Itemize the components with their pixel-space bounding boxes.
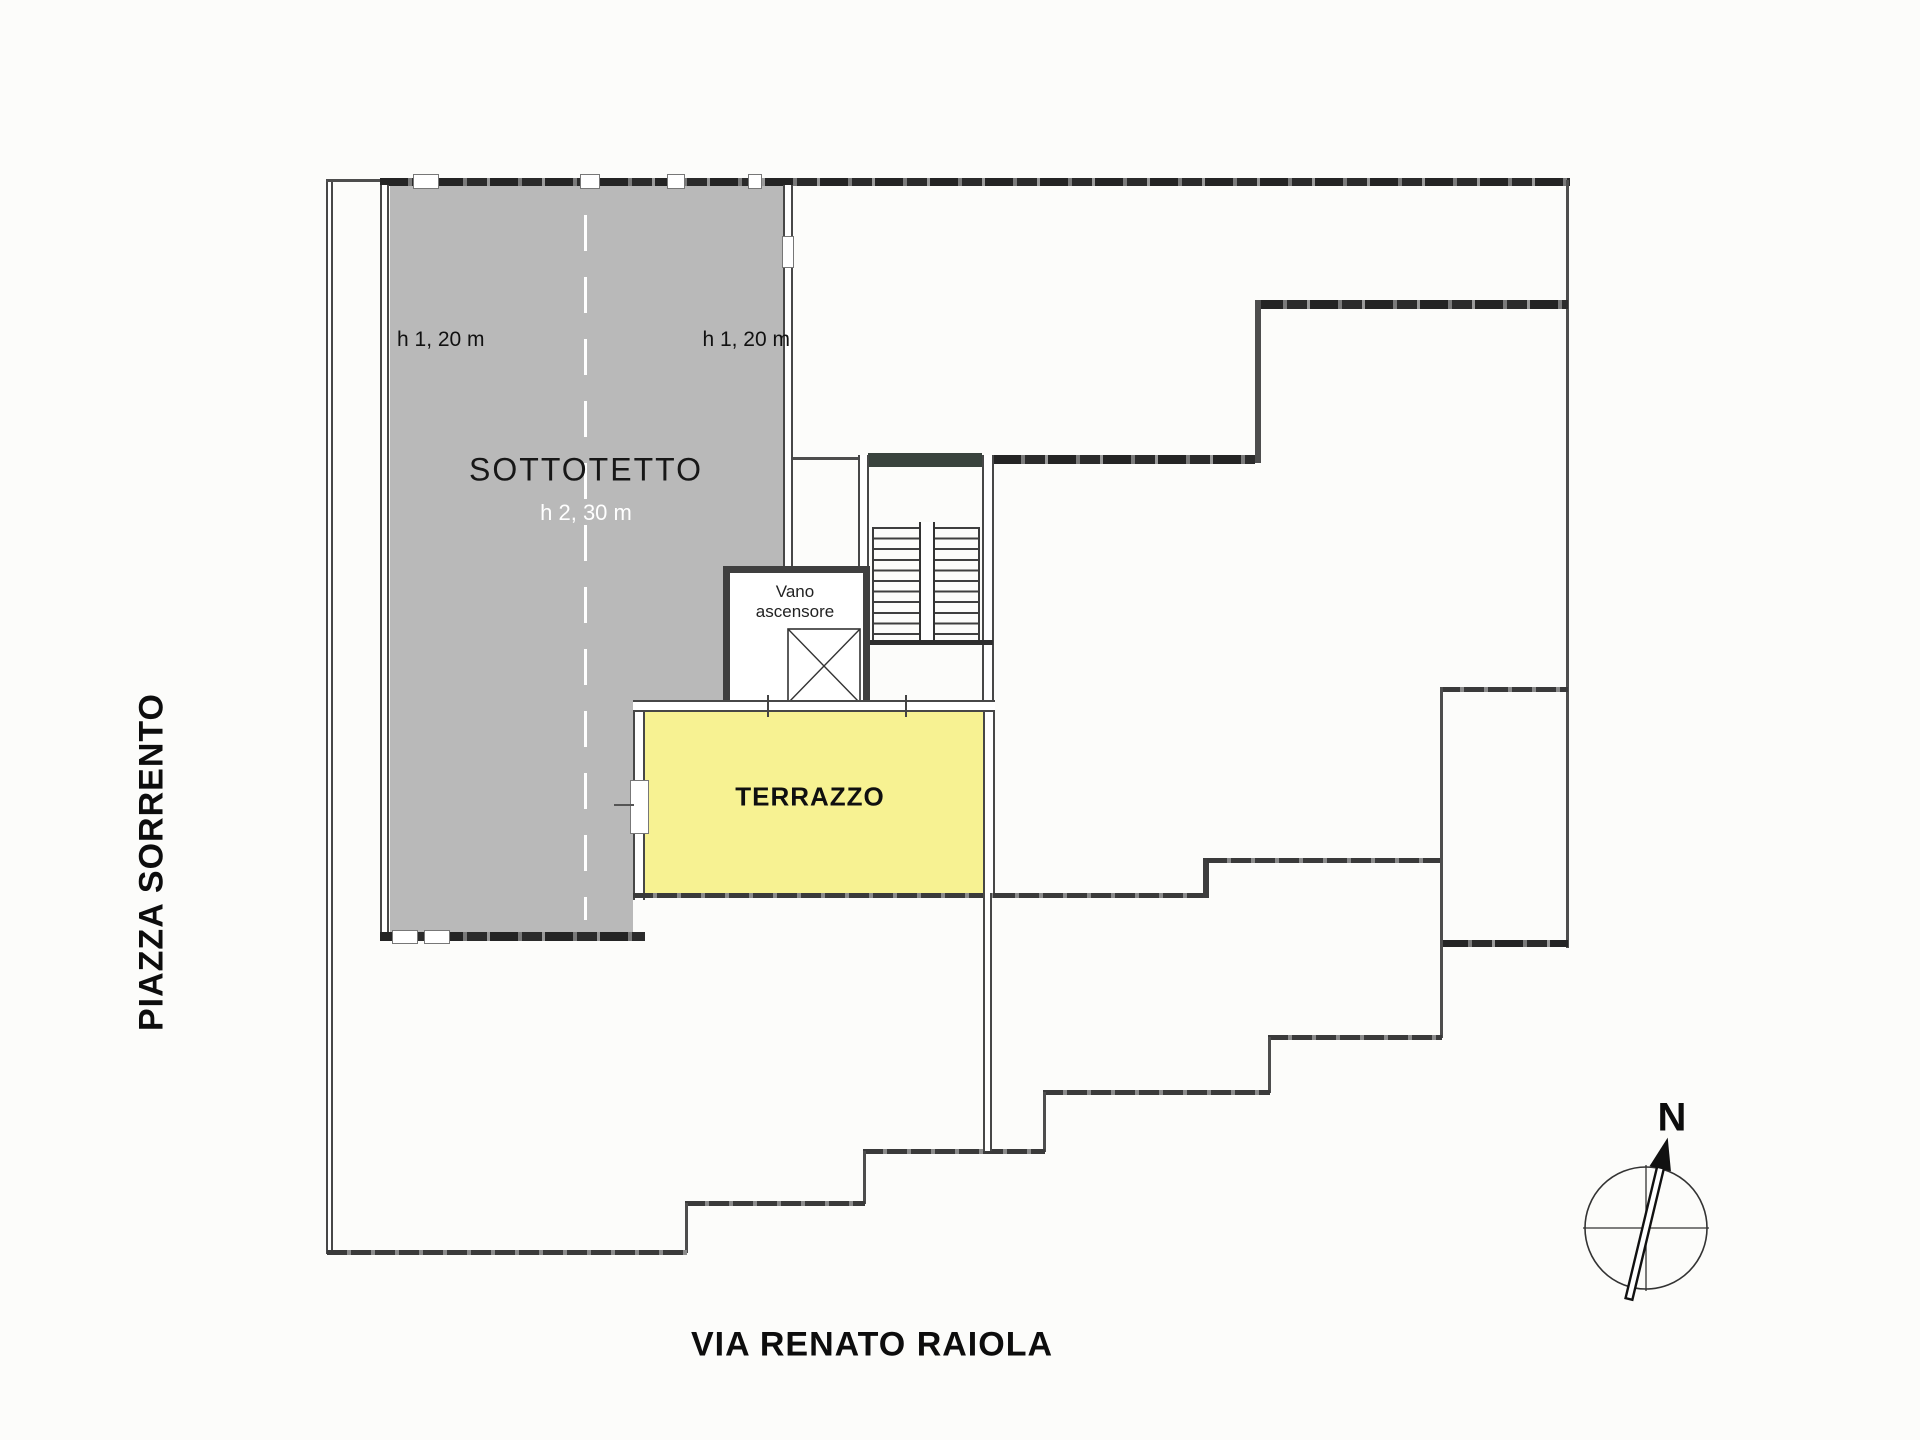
stair-treads-right — [931, 527, 980, 641]
street-label-left: PIAZZA SORRENTO — [133, 693, 172, 1031]
boundary-left — [326, 180, 333, 1254]
terrazzo-top-tick-2 — [905, 695, 907, 717]
step-rect-bottom — [1440, 940, 1568, 947]
window-top-4 — [748, 174, 762, 189]
step-v3 — [1043, 1092, 1046, 1152]
wall-upper-right-vert — [1255, 300, 1261, 463]
stair-header-wall — [868, 453, 982, 467]
sottotetto-left-wall — [380, 185, 389, 932]
window-right-wall — [782, 236, 794, 268]
step-v1 — [1440, 946, 1443, 1038]
wall-mid-thin — [793, 457, 868, 460]
terrazzo-top-tick-1 — [767, 695, 769, 717]
sottotetto-height-right: h 1, 20 m — [702, 328, 790, 352]
window-top-2 — [580, 174, 600, 189]
terrazzo-bottom-line — [633, 893, 995, 898]
stair-right-wall — [982, 455, 994, 712]
wall-low-h1 — [995, 893, 1207, 898]
boundary-top — [380, 178, 1570, 186]
step-h5 — [685, 1201, 865, 1206]
stair-divider — [919, 522, 935, 641]
elevator-shaft-x-icon — [787, 628, 861, 704]
window-bottom-2 — [424, 930, 450, 944]
wall-low-h2 — [1207, 858, 1440, 863]
wall-low-step — [1203, 858, 1209, 898]
elevator-room-label: Vano ascensore — [756, 582, 834, 623]
step-v4 — [863, 1151, 866, 1204]
terrazzo-label: TERRAZZO — [735, 782, 885, 813]
sottotetto-height-center: h 2, 30 m — [540, 500, 632, 526]
step-v2 — [1268, 1037, 1271, 1093]
step-v5 — [685, 1203, 688, 1253]
north-needle-icon — [1618, 1135, 1678, 1302]
terrazzo-right-wall — [983, 712, 995, 893]
sottotetto-bottom-wall — [380, 932, 645, 941]
elevator-label-line1: Vano — [756, 582, 834, 602]
elevator-label-line2: ascensore — [756, 602, 834, 622]
terrazzo-window-tick — [614, 804, 634, 806]
stair-bottom-line — [868, 640, 993, 645]
window-top-3 — [667, 174, 685, 189]
step-h4 — [863, 1149, 1045, 1154]
sottotetto-label: SOTTOTETTO — [469, 452, 703, 489]
sottotetto-area-mid — [390, 572, 723, 712]
stair-treads-left — [872, 527, 921, 641]
center-lower-wall — [983, 893, 992, 1151]
step-h3 — [1043, 1090, 1270, 1095]
boundary-bottom — [327, 1250, 687, 1255]
terrazzo-top-wall — [633, 700, 995, 712]
compass-rose-icon — [1570, 1095, 1730, 1315]
wall-mid — [993, 455, 1255, 464]
sottotetto-area-low — [390, 712, 633, 932]
window-bottom-1 — [392, 930, 418, 944]
right-shaft-top — [1440, 687, 1568, 692]
ridge-dashed-line — [584, 215, 587, 920]
sottotetto-height-left: h 1, 20 m — [397, 328, 485, 352]
floor-plan: Vano ascensore SOTTOTETTO h 2, 30 m h 1,… — [0, 0, 1920, 1440]
boundary-right — [1566, 180, 1569, 948]
right-shaft-left — [1440, 687, 1443, 946]
street-label-bottom: VIA RENATO RAIOLA — [691, 1326, 1053, 1365]
boundary-top-left-stub — [326, 179, 386, 182]
terrazzo-window — [630, 780, 649, 834]
step-h2 — [1268, 1035, 1442, 1040]
window-top-1 — [413, 174, 439, 189]
wall-upper-right — [1255, 300, 1568, 309]
